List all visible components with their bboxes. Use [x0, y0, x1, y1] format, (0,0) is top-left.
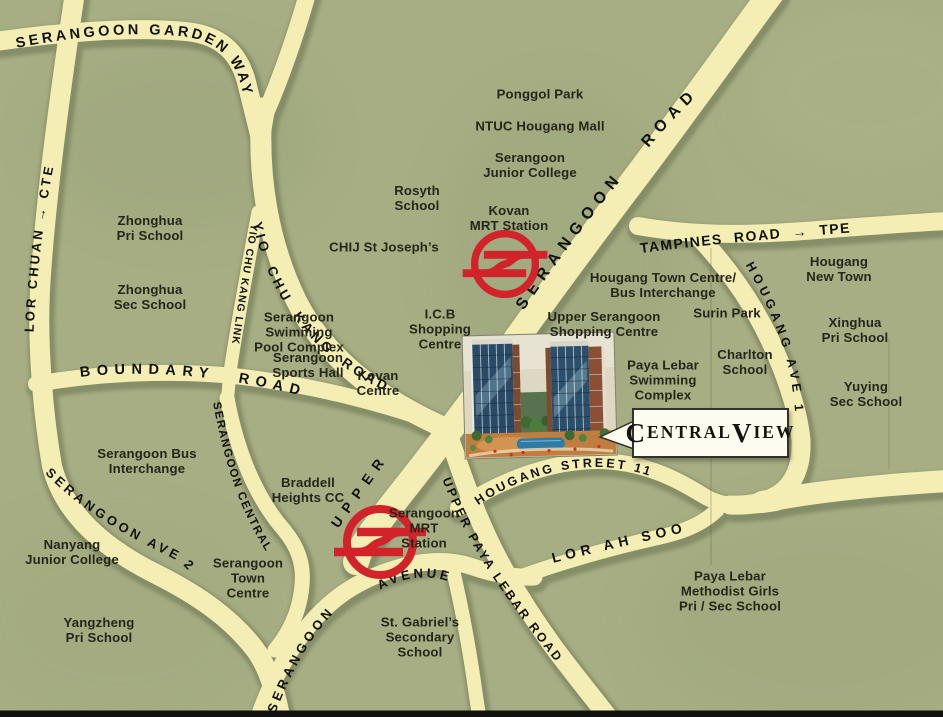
place-label-serangoon-junior-college: Serangoon Junior College — [483, 151, 577, 181]
map-canvas: SERANGOON GARDEN WAY LOR CHUAN → CTE YIO… — [0, 0, 943, 717]
place-label-serangoon-swimming-pool: Serangoon Swimming Pool Complex — [254, 311, 344, 356]
place-label-zhonghua-pri-school: Zhonghua Pri School — [117, 214, 184, 244]
place-label-serangoon-sports-hall: Serangoon Sports Hall — [272, 351, 343, 381]
place-label-serangoon-bus-interchange: Serangoon Bus Interchange — [97, 447, 196, 477]
place-label-rosyth-school: Rosyth School — [394, 184, 440, 214]
central-view-building-image — [462, 332, 617, 459]
place-label-paya-lebar-methodist: Paya Lebar Methodist Girls Pri / Sec Sch… — [679, 570, 781, 615]
place-label-charlton-school: Charlton School — [717, 348, 772, 378]
place-label-serangoon-town-centre: Serangoon Town Centre — [213, 557, 283, 602]
location-map: SERANGOON GARDEN WAY LOR CHUAN → CTE YIO… — [0, 0, 943, 717]
place-label-nanyang-junior-college: Nanyang Junior College — [25, 538, 119, 568]
place-label-ntuc-hougang-mall: NTUC Hougang Mall — [475, 120, 604, 135]
place-label-hougang-town-centre: Hougang Town Centre/ Bus Interchange — [590, 271, 736, 301]
place-label-hougang-new-town: Hougang New Town — [806, 255, 871, 285]
place-label-upper-serangoon-shopping-centre: Upper Serangoon Shopping Centre — [548, 310, 661, 340]
place-label-yuying-sec-school: Yuying Sec School — [830, 380, 903, 410]
scan-edge — [0, 711, 943, 717]
place-label-icb-shopping-centre: I.C.B Shopping Centre — [409, 308, 471, 353]
callout-text: C — [626, 420, 648, 447]
place-label-chij-st-josephs: CHIJ St Joseph’s — [329, 241, 439, 256]
place-label-st-gabriels: St. Gabriel’s Secondary School — [381, 616, 459, 661]
place-label-kovan-centre: Kovan Centre — [357, 369, 400, 399]
central-view-callout: CENTRALVIEW — [632, 408, 789, 458]
place-label-zhonghua-sec-school: Zhonghua Sec School — [114, 283, 187, 313]
place-label-serangoon-mrt-station: Serangoon MRT Station — [389, 507, 459, 552]
place-label-braddell-heights-cc: Braddell Heights CC — [272, 476, 345, 506]
place-label-kovan-mrt-station: Kovan MRT Station — [470, 204, 549, 234]
place-label-ponggol-park: Ponggol Park — [497, 88, 584, 103]
place-label-surin-park: Surin Park — [693, 307, 760, 322]
place-label-paya-lebar-swimming: Paya Lebar Swimming Complex — [627, 359, 699, 404]
place-label-xinghua-pri-school: Xinghua Pri School — [822, 316, 889, 346]
place-label-yangzheng-pri-school: Yangzheng Pri School — [64, 616, 135, 646]
